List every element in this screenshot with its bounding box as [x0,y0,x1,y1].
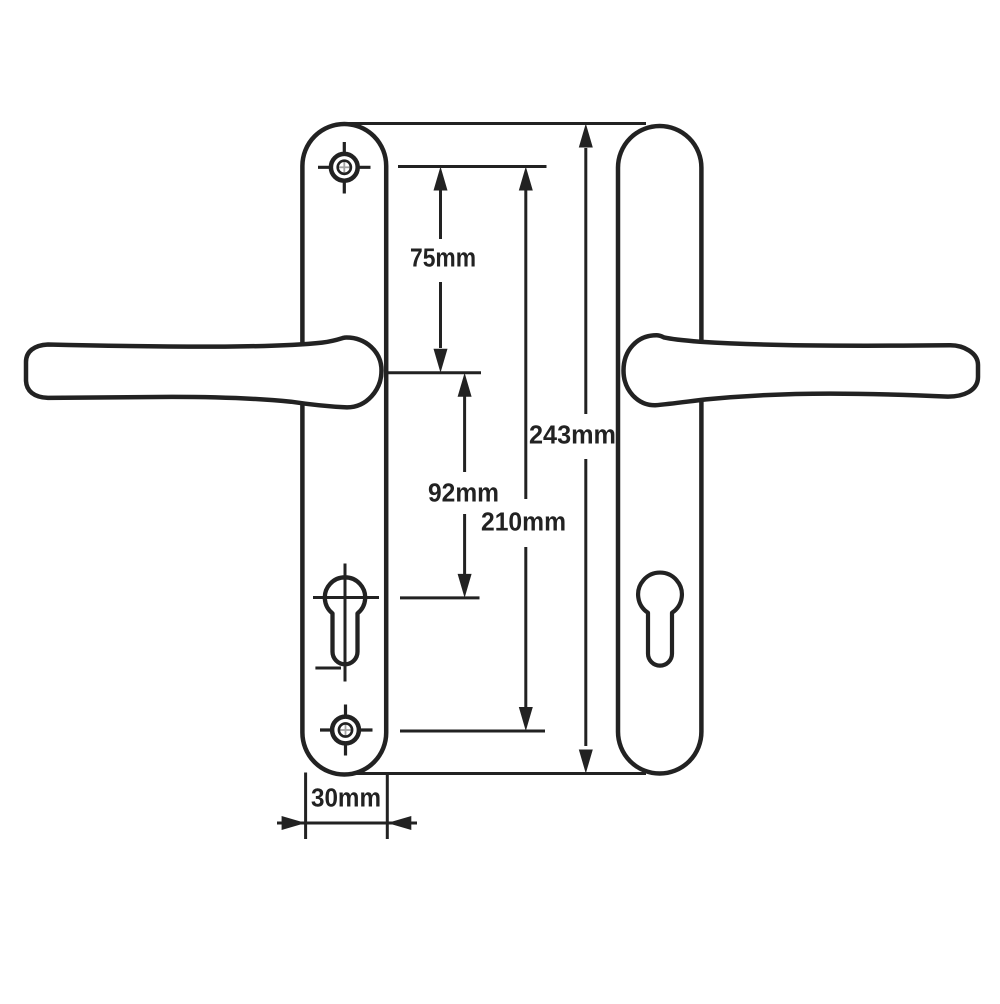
svg-text:75mm: 75mm [410,245,476,273]
svg-text:243mm: 243mm [529,422,616,450]
svg-text:92mm: 92mm [428,480,499,508]
svg-text:30mm: 30mm [311,785,381,813]
svg-text:210mm: 210mm [481,509,566,537]
